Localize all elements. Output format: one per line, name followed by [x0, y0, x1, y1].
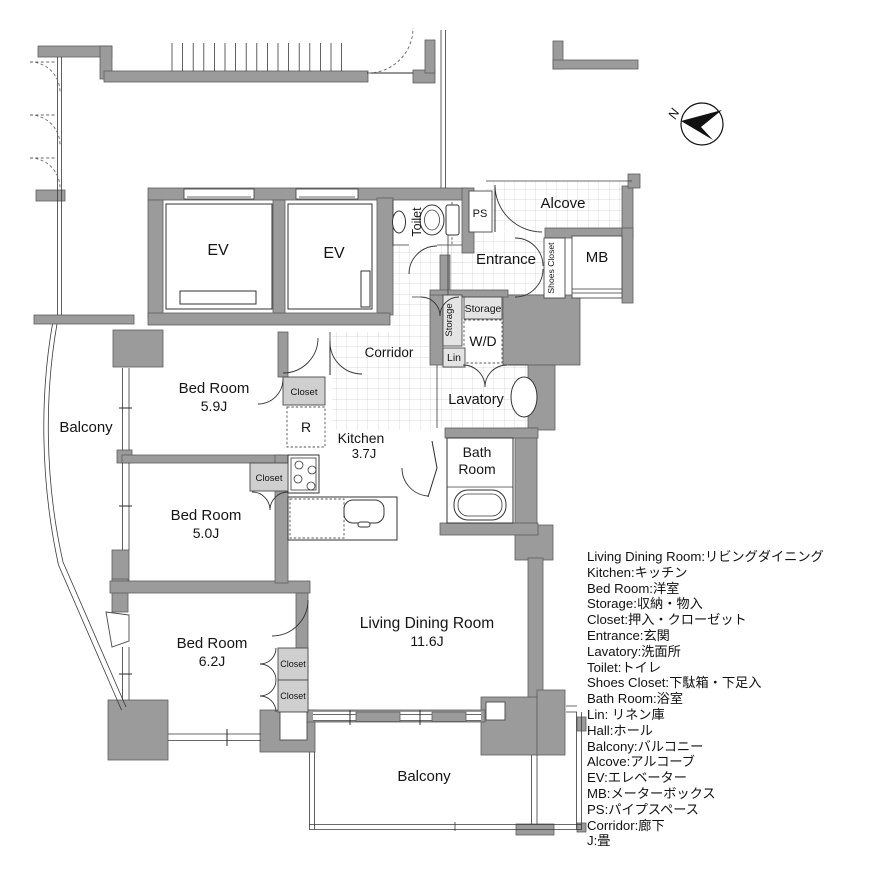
closet4-door-arc [260, 680, 276, 696]
label-bedroom1: Bed Room [179, 380, 250, 397]
label-closet2: Closet [256, 473, 283, 484]
label-storage-top: Storage [465, 303, 502, 315]
stove [288, 455, 319, 493]
legend-line: PS:パイプスペース [587, 802, 869, 818]
pillar-notch [486, 702, 505, 720]
elevator-counterweight [180, 291, 256, 304]
wall-segment [34, 315, 134, 324]
legend-line: Lin: リネン庫 [587, 707, 869, 723]
wall-segment [36, 190, 65, 201]
toilet-tank [446, 205, 459, 235]
floor-plan-page: N EV EV Toilet PS Alcove Entrance Shoes … [0, 0, 872, 872]
closet3-door-arc [260, 648, 276, 664]
balcony-partition [532, 755, 538, 824]
neighbor-door-arc [368, 28, 413, 73]
label-bedroom3-size: 6.2J [199, 653, 225, 669]
legend-line: J:畳 [587, 833, 869, 849]
wall-segment [148, 313, 390, 325]
label-closet1: Closet [291, 387, 318, 398]
closet4-door-arc [260, 696, 276, 712]
legend-line: Entrance:玄関 [587, 628, 869, 644]
label-wd: W/D [469, 333, 496, 349]
label-balcony-bottom: Balcony [397, 768, 451, 785]
neighbor-door-arc [30, 115, 60, 145]
neighbor-door-leaf-dotted [30, 62, 58, 158]
window-sill [432, 712, 466, 722]
window-bedroom1 [123, 368, 130, 450]
closet1-door-arc [258, 379, 283, 404]
bath-door-arc [402, 468, 428, 496]
label-alcove: Alcove [540, 195, 585, 212]
label-bath-1: Bath [463, 444, 492, 460]
wall-segment [440, 255, 450, 295]
window-sill [356, 712, 400, 722]
wall-segment [278, 332, 288, 377]
legend-line: Corridor:廊下 [587, 818, 869, 834]
label-ev2: EV [323, 245, 345, 262]
neighbor-door-arc [30, 62, 60, 92]
wall-segment [273, 200, 285, 315]
wall-segment [122, 455, 285, 463]
kitchen-sink-icon [344, 500, 384, 523]
label-kitchen-size: 3.7J [352, 446, 377, 461]
compass: N [665, 103, 723, 145]
legend-line: Alcove:アルコーブ [587, 754, 869, 770]
legend-line: Bed Room:洋室 [587, 581, 869, 597]
legend-line: Toilet:トイレ [587, 660, 869, 676]
lavatory-basin-icon [511, 377, 537, 417]
bottom-balcony-rail [310, 752, 315, 829]
closet3-door-arc [260, 664, 276, 680]
wall-segment [503, 295, 580, 365]
label-shoes-closet: Shoes Closet [546, 242, 556, 294]
legend-line: Closet:押入・クローゼット [587, 612, 869, 628]
label-closet4: Closet [280, 691, 306, 701]
pillar [108, 700, 168, 760]
elevator-door-sill [184, 189, 254, 199]
window-bedroom3-south [168, 734, 261, 741]
label-ldk-size: 11.6J [410, 633, 443, 649]
label-closet3: Closet [280, 659, 306, 669]
window-reveal [106, 612, 129, 647]
toilet-sink-icon [393, 211, 406, 233]
label-bedroom2: Bed Room [171, 507, 242, 524]
legend-line: Bath Room:浴室 [587, 691, 869, 707]
label-ps: PS [473, 208, 488, 220]
wall-segment [104, 71, 368, 82]
pillar-box [280, 712, 307, 740]
label-lavatory: Lavatory [448, 392, 504, 408]
corridor-hatch [172, 43, 342, 71]
label-bedroom2-size: 5.0J [193, 525, 219, 541]
label-mb: MB [586, 249, 609, 266]
wall-segment [553, 60, 638, 69]
label-ev1: EV [207, 242, 229, 259]
legend-line: MB:メーターボックス [587, 786, 869, 802]
pillar [113, 330, 163, 367]
legend-line: Living Dining Room:リビングダイニング [587, 549, 869, 565]
label-corridor: Corridor [365, 345, 414, 360]
boundary-double-line [441, 30, 446, 188]
wall-segment [148, 200, 163, 318]
bath-door-leaf [428, 441, 437, 497]
label-ldk: Living Dining Room [360, 615, 494, 632]
label-bath-2: Room [458, 461, 495, 477]
wall-segment [425, 40, 435, 73]
wall-segment [528, 558, 543, 698]
label-kitchen: Kitchen [338, 430, 385, 446]
label-bedroom1-size: 5.9J [201, 398, 227, 414]
wall-segment [445, 428, 538, 438]
wall-segment [622, 228, 633, 303]
legend-line: Shoes Closet:下駄箱・下足入 [587, 675, 869, 691]
wall-segment [112, 550, 129, 581]
elevator-door-sill [296, 189, 358, 199]
legend-line: EV:エレベーター [587, 770, 869, 786]
bathtub-icon [454, 490, 506, 520]
kitchen-sink-tab [358, 522, 370, 527]
wall-segment [515, 428, 537, 528]
label-fridge: R [301, 419, 311, 435]
compass-north-label: N [665, 106, 683, 122]
label-balcony-left: Balcony [59, 419, 113, 436]
neighbor-door-arc [30, 158, 60, 188]
label-storage-side: Storage [444, 303, 455, 336]
left-balcony-rail [48, 324, 126, 707]
closet2-door-arc [252, 492, 270, 510]
label-bedroom3: Bed Room [177, 635, 248, 652]
left-balcony-rail [44, 324, 122, 710]
label-lin: Lin [447, 352, 461, 364]
legend-line: Kitchen:キッチン [587, 565, 869, 581]
label-entrance: Entrance [476, 251, 536, 268]
legend-line: Lavatory:洗面所 [587, 644, 869, 660]
label-toilet: Toilet [410, 207, 424, 237]
balcony-rail-link [566, 706, 577, 712]
pillar [537, 690, 565, 755]
legend-line: Hall:ホール [587, 723, 869, 739]
legend: Living Dining Room:リビングダイニング Kitchen:キッチ… [587, 549, 869, 849]
elevator-counterweight [361, 271, 370, 307]
wall-segment [440, 523, 538, 535]
wall-segment [377, 198, 393, 315]
legend-line: Balcony:バルコニー [587, 739, 869, 755]
legend-line: Storage:収納・物入 [587, 596, 869, 612]
